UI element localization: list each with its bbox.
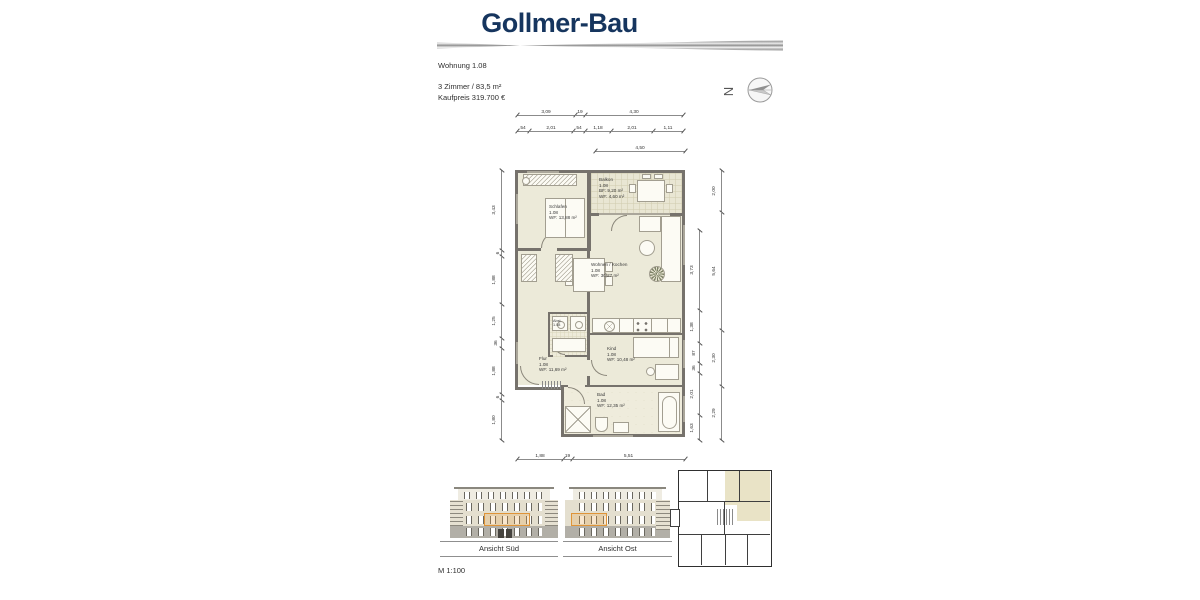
room-label-balkon: Balkon 1.08 BF: 9,20 m² WF: 4,60 m²	[599, 177, 624, 199]
bathtub-inner	[662, 396, 677, 429]
north-label: N	[721, 87, 736, 96]
room-area: WF: 11,69 m²	[539, 367, 566, 373]
window	[683, 396, 685, 422]
window-row	[466, 528, 542, 536]
counter-divider	[667, 319, 668, 332]
furniture-chair	[629, 184, 636, 193]
sink-icon	[604, 321, 615, 332]
wall	[589, 333, 682, 335]
window-row	[464, 492, 544, 499]
elevation-sued	[450, 487, 558, 540]
room-area: BF: 9,20 m²	[599, 188, 624, 194]
room-label-bad: Bad 1.08 WF: 12,35 m²	[597, 392, 625, 409]
key-plan-unit-highlight	[737, 505, 770, 521]
furniture-shelf	[552, 338, 586, 352]
dryer-drum	[575, 321, 583, 329]
furniture-coffee-table	[639, 240, 655, 256]
scale-note: M 1:100	[438, 566, 465, 575]
window-row	[579, 492, 656, 499]
room-area: WF: 4,60 m²	[599, 194, 624, 200]
dim-chain-right-inner: 3,73 1,38 87 36 2,01 1,63	[692, 230, 700, 440]
wall	[557, 248, 590, 251]
wall	[591, 213, 599, 216]
floor-plan: Balkon 1.08 BF: 9,20 m² WF: 4,60 m² Schl…	[515, 170, 685, 440]
room-label-wohnen: Wohnen / Kochen 1.08 WF: 30,27 m²	[591, 262, 627, 279]
furniture-chair	[666, 184, 673, 193]
wall	[518, 248, 541, 251]
window-row	[579, 503, 655, 511]
furniture-kid-bed	[633, 337, 679, 358]
brochure-page: Gollmer-Bau Wohnung 1.08 3 Zimmer / 83,5…	[0, 0, 1200, 600]
logo-ribbon-graphic	[437, 40, 783, 51]
entrance-porch	[670, 509, 680, 527]
room-area: WF: 10,48 m²	[607, 357, 635, 363]
counter-divider	[651, 319, 652, 332]
balcony-stack	[656, 500, 670, 530]
furniture-lamp	[522, 177, 530, 185]
unit-highlight	[484, 513, 530, 526]
window	[516, 194, 518, 224]
furniture-sofa-chaise	[639, 216, 661, 232]
furniture-desk	[655, 364, 679, 380]
dryer-icon	[570, 316, 586, 331]
furniture-closet	[521, 254, 537, 282]
window	[683, 225, 685, 265]
elevation-sued-label: Ansicht Süd	[440, 544, 558, 553]
shower-icon	[565, 406, 591, 433]
balcony-stack	[545, 500, 558, 526]
stove-icon	[634, 320, 650, 333]
balcony-stack	[450, 500, 463, 526]
dim-chain-bottom: 1,88 19 5,51	[517, 452, 685, 460]
dim-chain-left: 3,43 6 1,88 1,25 36 1,88 6 1,80	[494, 170, 502, 440]
wall	[585, 385, 682, 387]
label-underline	[440, 556, 558, 557]
room-area: WF: 12,35 m²	[597, 403, 625, 409]
entrance-threshold-hatch	[542, 381, 561, 389]
toilet-icon	[595, 417, 608, 432]
entrance-door	[506, 529, 512, 538]
key-plan-wall	[707, 471, 708, 501]
unit-price: Kaufpreis 319.700 €	[438, 93, 505, 102]
north-arrow: N	[722, 76, 778, 106]
ground-line	[563, 541, 672, 542]
key-plan-wall	[701, 534, 702, 565]
furniture-closet	[555, 254, 573, 282]
room-label-abst: Abst. 1.08	[553, 319, 562, 328]
wall	[561, 387, 564, 437]
elevation-ost	[565, 487, 670, 540]
unit-title: Wohnung 1.08	[438, 61, 487, 70]
room-area: WF: 30,27 m²	[591, 273, 627, 279]
label-underline	[563, 556, 672, 557]
furniture-desk-chair	[646, 367, 655, 376]
room-area: WF: 13,88 m²	[549, 215, 577, 221]
kitchen-counter	[592, 318, 681, 333]
key-plan-wall	[739, 471, 740, 501]
company-logo: Gollmer-Bau	[437, 8, 682, 39]
plant-icon	[649, 266, 665, 282]
balcony-window-front	[599, 213, 670, 215]
elevation-ost-label: Ansicht Ost	[563, 544, 672, 553]
dim-chain-top-2: 54 2,01 54 1,18 2,01 1,11	[517, 124, 683, 132]
bathtub-icon	[658, 392, 680, 432]
entrance-door	[498, 529, 504, 538]
key-plan-wall	[725, 534, 726, 565]
wall	[548, 312, 550, 357]
window	[527, 171, 559, 173]
wall	[587, 170, 591, 251]
window	[683, 340, 685, 368]
key-plan-wall	[747, 534, 748, 565]
furniture-chair	[642, 174, 651, 179]
key-plan-unit-highlight	[725, 471, 770, 505]
window-row	[579, 528, 655, 536]
stairwell-hatch	[717, 509, 733, 525]
wall	[548, 312, 590, 314]
unit-details: 3 Zimmer / 83,5 m²	[438, 82, 501, 91]
furniture-balcony-table	[637, 180, 665, 202]
furniture-wardrobe	[523, 174, 577, 186]
room-number: 1.08	[553, 323, 562, 327]
washbasin-icon	[613, 422, 629, 433]
window-row	[466, 503, 542, 511]
wall	[561, 385, 568, 387]
key-plan	[678, 470, 772, 567]
ground-line	[440, 541, 558, 542]
furniture-chair	[654, 174, 663, 179]
dim-chain-right-outer: 2,00 5,64 2,30 2,29	[714, 170, 722, 440]
window	[593, 435, 633, 437]
room-label-flur: Flur 1.08 WF: 11,69 m²	[539, 356, 566, 373]
bed-pillow-line	[669, 338, 670, 357]
counter-divider	[619, 319, 620, 332]
dim-chain-top-3: 4,50	[595, 144, 685, 152]
unit-highlight	[571, 513, 607, 526]
wall	[587, 314, 590, 360]
window	[516, 342, 518, 364]
room-name: Wohnen / Kochen	[591, 262, 627, 268]
dim-chain-top-1: 3,09 19 4,30	[517, 108, 683, 116]
room-label-kind: Kind 1.08 WF: 10,48 m²	[607, 346, 635, 363]
room-label-schlafen: Schlafen 1.08 WF: 13,88 m²	[549, 204, 577, 221]
